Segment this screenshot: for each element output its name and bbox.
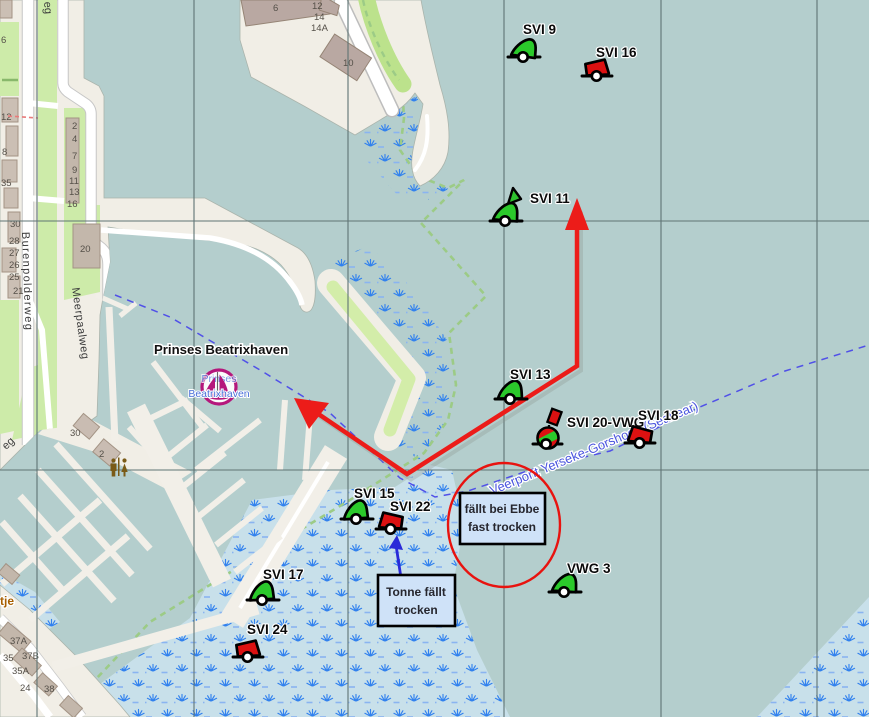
svg-text:SVI 22: SVI 22 [390, 499, 431, 514]
svg-text:12: 12 [312, 1, 323, 12]
svg-text:6: 6 [273, 3, 278, 14]
svg-text:SVI 15: SVI 15 [354, 486, 395, 501]
svg-text:SVI 11: SVI 11 [530, 191, 570, 206]
svg-text:Tonne fällt: Tonne fällt [386, 585, 446, 599]
svg-text:SVI 9: SVI 9 [523, 22, 556, 37]
svg-text:Prinses Beatrixhaven: Prinses Beatrixhaven [154, 342, 288, 357]
svg-text:38: 38 [44, 684, 55, 695]
svg-text:35: 35 [1, 178, 12, 189]
svg-text:SVI 16: SVI 16 [596, 45, 637, 60]
svg-text:Beatrixhaven: Beatrixhaven [188, 388, 249, 400]
svg-text:trocken: trocken [394, 603, 437, 617]
svg-text:26: 26 [9, 260, 20, 271]
svg-text:tje: tje [0, 594, 14, 608]
svg-text:25: 25 [9, 272, 20, 283]
svg-text:2: 2 [72, 121, 77, 132]
svg-text:14A: 14A [311, 23, 329, 34]
svg-text:12: 12 [1, 112, 12, 123]
svg-text:eg: eg [41, 1, 54, 14]
svg-text:SVI 13: SVI 13 [510, 367, 551, 382]
svg-text:37A: 37A [10, 636, 28, 647]
svg-text:Prinses: Prinses [201, 373, 236, 385]
svg-text:16: 16 [67, 199, 78, 210]
svg-text:13: 13 [69, 187, 80, 198]
svg-text:7: 7 [72, 151, 77, 162]
svg-text:37B: 37B [22, 651, 39, 662]
svg-text:8: 8 [2, 147, 7, 158]
svg-text:SVI 24: SVI 24 [247, 622, 288, 637]
svg-text:28: 28 [9, 236, 20, 247]
svg-text:35: 35 [3, 653, 14, 664]
svg-text:30: 30 [70, 428, 81, 439]
svg-text:SVI 18: SVI 18 [638, 408, 679, 423]
svg-text:2: 2 [99, 449, 104, 460]
svg-text:4: 4 [72, 134, 77, 145]
svg-text:27: 27 [9, 248, 20, 259]
svg-text:11: 11 [69, 176, 79, 187]
svg-text:SVI 17: SVI 17 [263, 567, 304, 582]
svg-text:24: 24 [20, 683, 31, 694]
svg-text:20: 20 [80, 244, 91, 255]
svg-text:14: 14 [314, 12, 325, 23]
svg-text:VWG 3: VWG 3 [567, 561, 611, 576]
svg-text:fällt bei Ebbe: fällt bei Ebbe [465, 502, 540, 516]
svg-text:fast trocken: fast trocken [468, 520, 536, 534]
svg-text:6: 6 [1, 35, 6, 46]
svg-text:9: 9 [72, 165, 77, 176]
svg-text:35A: 35A [12, 666, 30, 677]
